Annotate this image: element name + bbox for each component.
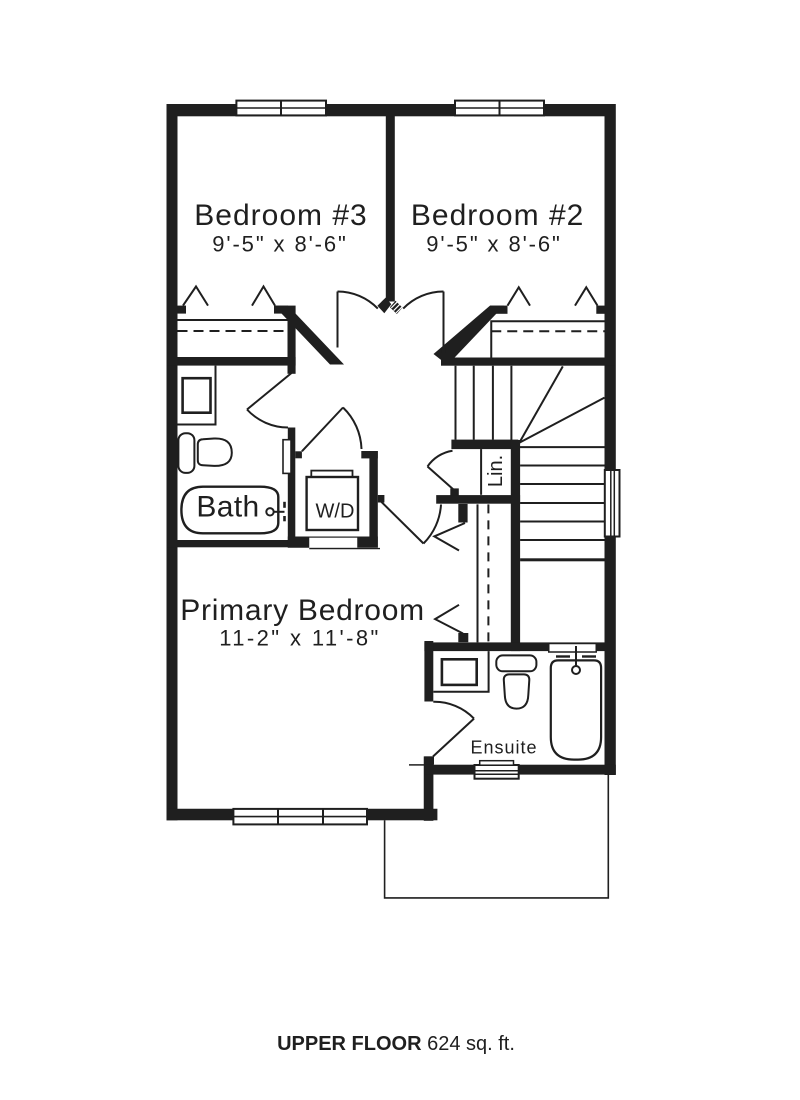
svg-text:Bedroom #3: Bedroom #3 [194, 199, 367, 232]
svg-text:Ensuite: Ensuite [470, 738, 537, 758]
svg-text:UPPER FLOOR 624 sq. ft.: UPPER FLOOR 624 sq. ft. [277, 1033, 515, 1055]
svg-text:Lin.: Lin. [485, 455, 507, 487]
svg-text:11-2" x 11'-8": 11-2" x 11'-8" [219, 626, 380, 651]
svg-text:Bath: Bath [196, 491, 259, 524]
svg-text:Bedroom #2: Bedroom #2 [411, 199, 584, 232]
svg-text:9'-5" x 8'-6": 9'-5" x 8'-6" [426, 232, 562, 257]
svg-text:Primary Bedroom: Primary Bedroom [180, 594, 425, 627]
svg-text:9'-5" x 8'-6": 9'-5" x 8'-6" [212, 232, 348, 257]
svg-text:W/D: W/D [316, 501, 355, 523]
